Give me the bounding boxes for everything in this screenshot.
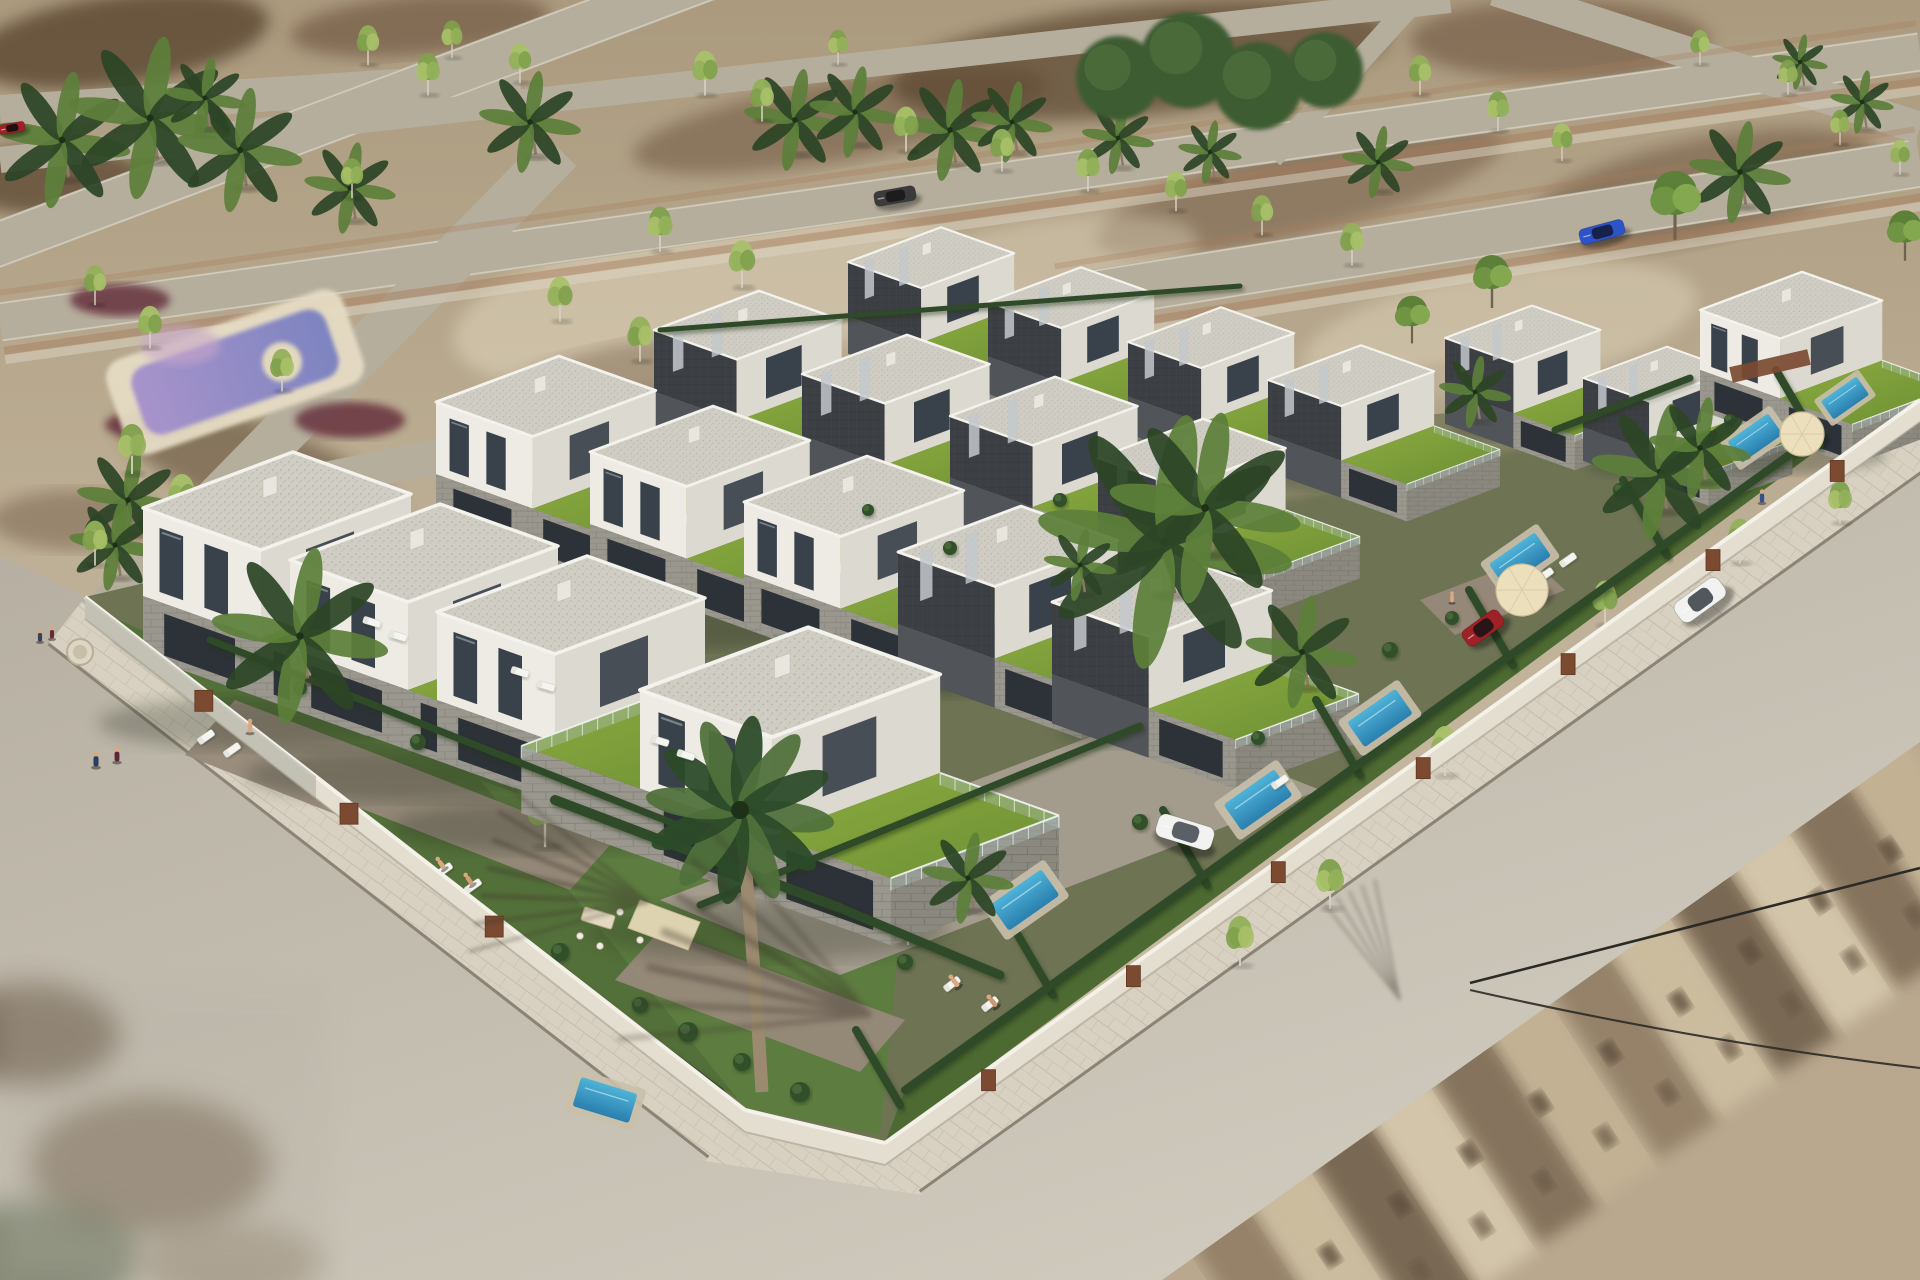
tree-shadow <box>1168 209 1187 214</box>
tree-shadow <box>551 319 573 324</box>
palm-crown <box>59 137 66 144</box>
tree-shadow <box>86 563 108 568</box>
window <box>204 544 228 616</box>
birch-crown <box>366 33 379 51</box>
person-body <box>248 723 253 733</box>
tree-shadow <box>445 56 463 61</box>
person-head <box>1760 489 1764 493</box>
person-head <box>93 751 98 756</box>
birch-crown <box>703 60 717 80</box>
birch-crown <box>658 216 672 236</box>
tree-shadow <box>733 285 756 291</box>
person-head <box>50 626 54 630</box>
window-slit <box>1179 326 1188 367</box>
window-slit <box>1598 375 1606 412</box>
birch-crown <box>638 326 652 346</box>
corten-gate <box>195 690 213 711</box>
tree-shadow <box>696 93 718 98</box>
birch-crown <box>1328 869 1344 891</box>
window <box>794 531 813 590</box>
birch-crown <box>1086 157 1100 176</box>
palm-crown <box>527 119 533 125</box>
bush-highlight <box>1054 494 1061 501</box>
tree-cluster-light <box>1150 22 1203 75</box>
dining-chair <box>637 937 644 944</box>
tree-cluster-light <box>1295 40 1337 82</box>
bush-highlight <box>1384 644 1392 652</box>
palm-crown <box>1078 563 1083 568</box>
tree-shadow <box>994 169 1014 174</box>
tree-shadow <box>651 249 673 254</box>
window-slit <box>1285 376 1294 417</box>
window-slit <box>920 547 932 601</box>
person-body <box>38 633 42 642</box>
bush-highlight <box>553 945 562 954</box>
tree-shadow <box>1832 521 1852 526</box>
corten-gate <box>1126 966 1140 987</box>
tree-cluster-light <box>1084 44 1130 90</box>
tree-shadow <box>1731 561 1753 566</box>
birch-crown <box>280 357 294 376</box>
birch-crown <box>760 87 774 106</box>
birch-crown <box>1350 231 1364 250</box>
birch-crown <box>1839 117 1850 132</box>
birch-crown <box>740 250 755 271</box>
birch-crown <box>451 28 463 45</box>
person-head <box>38 629 42 633</box>
tree-shadow <box>754 119 774 124</box>
tree-shadow <box>1320 906 1344 912</box>
tree-shadow <box>1080 189 1100 194</box>
tree-shadow <box>1412 93 1431 98</box>
window-slit <box>1319 364 1328 405</box>
birch-crown <box>1561 131 1573 148</box>
palm-crown <box>1473 390 1478 395</box>
person-head <box>115 747 120 752</box>
birch-crown <box>426 61 440 80</box>
window-slit <box>1145 338 1154 379</box>
dining-chair <box>577 933 584 940</box>
birch-crown <box>1174 179 1187 197</box>
corten-gate <box>982 1070 996 1091</box>
tree-shadow <box>122 471 146 477</box>
foreground-blur-wash <box>0 980 330 1280</box>
tree-shadow <box>1344 263 1364 268</box>
bush-highlight <box>1252 732 1259 739</box>
palm-crown <box>202 95 207 100</box>
palm-crown <box>1208 150 1213 155</box>
planting-bed <box>295 402 405 438</box>
bush-highlight <box>792 1084 802 1094</box>
palm-crown <box>1860 100 1865 105</box>
birch-crown <box>1838 489 1852 508</box>
tree-shadow <box>420 93 440 98</box>
window-slit <box>1493 323 1502 361</box>
person-body <box>93 756 98 766</box>
tree-shadow <box>1781 93 1798 97</box>
window-slit <box>860 356 871 402</box>
palm-crown <box>146 114 153 121</box>
palm-crown <box>1201 504 1209 512</box>
window-slit <box>1008 398 1019 444</box>
person-body <box>1760 493 1764 502</box>
bush-highlight <box>899 956 907 964</box>
bush-highlight <box>412 736 420 744</box>
corten-gate <box>1416 758 1430 779</box>
tree-shadow <box>1893 173 1910 177</box>
palm-crown <box>1697 445 1703 451</box>
tree-shadow <box>142 346 162 351</box>
window-slit <box>821 370 832 416</box>
birch-crown <box>1238 926 1254 948</box>
palm-crown <box>1798 60 1802 64</box>
window-slit <box>966 530 978 584</box>
palm-crown <box>792 117 798 123</box>
palm-crown <box>1009 119 1014 124</box>
birch-crown <box>1899 147 1910 162</box>
render-canvas <box>0 0 1920 1280</box>
bush-highlight <box>863 505 869 511</box>
birch-crown <box>93 530 107 550</box>
window-slit <box>865 258 874 299</box>
tree-shadow <box>831 63 848 67</box>
car-highlight <box>1 129 5 130</box>
birch-crown <box>1260 203 1273 221</box>
tree-shadow <box>87 303 106 308</box>
aerial-architectural-render: Aerial 3D architectural rendering of a m… <box>0 0 1920 1280</box>
birch-crown <box>148 314 162 333</box>
person-body <box>115 752 120 762</box>
corten-gate <box>340 803 358 824</box>
palm-crown <box>237 147 243 153</box>
tree-shadow <box>631 359 653 364</box>
palm-crown <box>852 109 857 114</box>
tree-shadow <box>1230 963 1254 969</box>
window-slit <box>969 412 980 458</box>
tree-shadow <box>1490 129 1509 134</box>
person-body <box>1450 595 1454 603</box>
palm-crown <box>947 127 953 133</box>
palm-crown <box>1376 160 1381 165</box>
birch-crown <box>518 51 531 69</box>
birch-crown <box>1418 63 1431 81</box>
dining-chair <box>597 943 604 950</box>
palm-crown <box>1299 649 1305 655</box>
window-slit <box>712 312 723 358</box>
tree-crown <box>1490 265 1512 287</box>
window <box>640 481 659 540</box>
palm-crown <box>112 542 117 547</box>
tree-shadow <box>1833 143 1850 147</box>
birch-crown <box>1699 37 1710 52</box>
bush-highlight <box>735 1055 744 1064</box>
palm-crown <box>1737 169 1743 175</box>
corten-gate <box>1271 862 1285 883</box>
palm-crown <box>296 632 304 640</box>
tree-shadow <box>274 389 294 394</box>
parasol <box>1780 412 1824 456</box>
window <box>498 648 522 720</box>
window-slit <box>899 246 908 287</box>
tree-shadow <box>1254 233 1273 238</box>
tree-shadow <box>897 149 919 154</box>
birch-crown <box>1787 67 1798 82</box>
bush-highlight <box>944 542 951 549</box>
corten-gate <box>1830 460 1844 481</box>
birch-crown <box>837 37 848 52</box>
tree-shadow <box>1435 773 1459 779</box>
tree-shadow <box>1555 159 1573 164</box>
person-body <box>50 630 54 639</box>
person-head <box>1450 591 1454 595</box>
egg-chair-cushion <box>73 645 87 659</box>
parasol <box>1496 564 1548 616</box>
tree-shadow <box>1693 63 1710 67</box>
birch-crown <box>1496 99 1509 117</box>
birch-crown <box>130 434 146 456</box>
person-head <box>248 719 253 724</box>
corten-gate <box>1706 550 1720 571</box>
palm-crown <box>731 801 749 819</box>
bush-highlight <box>1446 612 1453 619</box>
tree-crown <box>1672 184 1701 213</box>
palm-crown <box>965 875 970 880</box>
birch-crown <box>558 286 572 306</box>
tree-shadow <box>512 81 531 86</box>
corten-gate <box>1561 654 1575 675</box>
window-slit <box>1629 363 1637 400</box>
birch-crown <box>1000 137 1014 156</box>
tree-cluster-light <box>1223 51 1271 99</box>
birch-crown <box>93 273 106 291</box>
bush-highlight <box>1134 816 1142 824</box>
window <box>486 431 505 490</box>
birch-crown <box>904 116 918 136</box>
tree-shadow <box>360 63 379 68</box>
tree-shadow <box>344 196 363 201</box>
tree-crown <box>1410 305 1430 325</box>
palm-crown <box>1116 136 1121 141</box>
palm-crown <box>125 497 131 503</box>
birch-crown <box>350 166 363 184</box>
